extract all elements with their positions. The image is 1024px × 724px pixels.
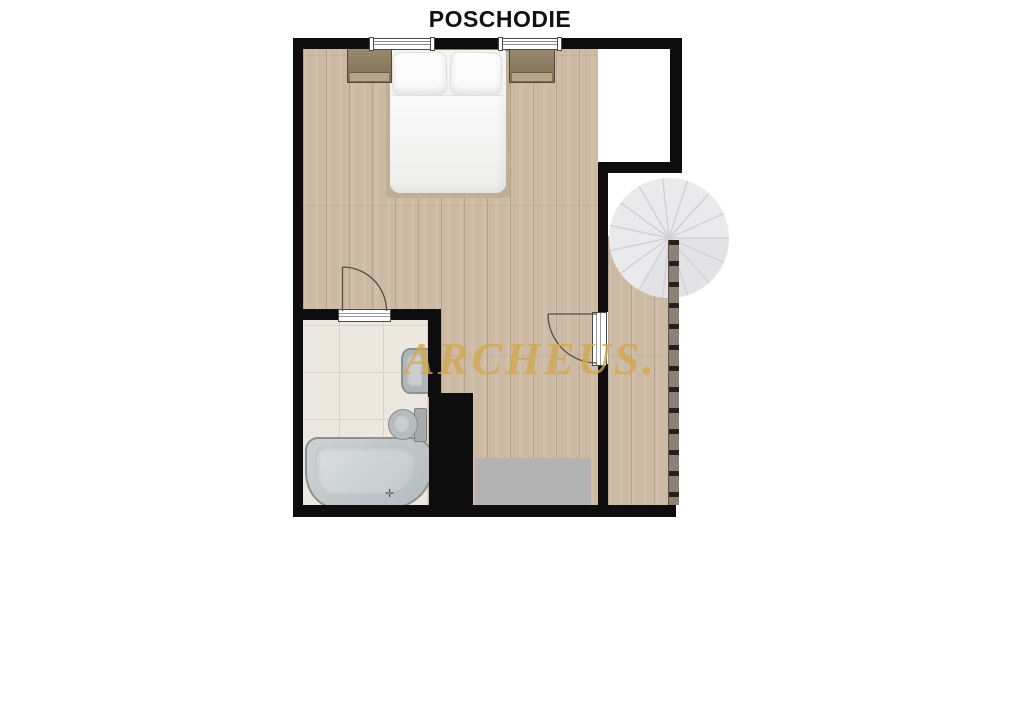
bathroom-door-threshold xyxy=(338,309,391,322)
nightstand-drawer xyxy=(512,72,552,81)
wall-bottom xyxy=(293,505,676,517)
window xyxy=(500,38,560,50)
wall-right xyxy=(670,38,682,173)
toilet-seat xyxy=(393,414,409,432)
bathtub-basin xyxy=(315,446,415,494)
bathtub: ✛ xyxy=(305,437,435,509)
floor-opening-area xyxy=(475,458,591,506)
pillow xyxy=(449,51,502,96)
wall-bathroom-top-left xyxy=(303,309,338,320)
bed xyxy=(386,47,510,198)
wall-left xyxy=(293,38,303,517)
stair-railing xyxy=(668,240,679,505)
wall-inner-upper xyxy=(598,171,608,312)
window xyxy=(371,38,433,50)
pillow xyxy=(391,51,447,96)
floor-plan: POSCHODIE ✛ xyxy=(0,0,1024,724)
nightstand-drawer xyxy=(350,72,389,81)
bed-duvet xyxy=(390,95,506,193)
wall-top xyxy=(293,38,682,49)
wall-shaft-block xyxy=(429,393,473,505)
wall-notch xyxy=(598,162,682,173)
faucet-icon: ✛ xyxy=(385,489,394,500)
watermark: ARCHEUS. xyxy=(404,332,657,385)
nightstand xyxy=(347,47,392,83)
page-title: POSCHODIE xyxy=(310,6,690,33)
wall-inner-lower xyxy=(598,364,608,507)
nightstand xyxy=(509,47,555,83)
toilet xyxy=(388,408,428,440)
